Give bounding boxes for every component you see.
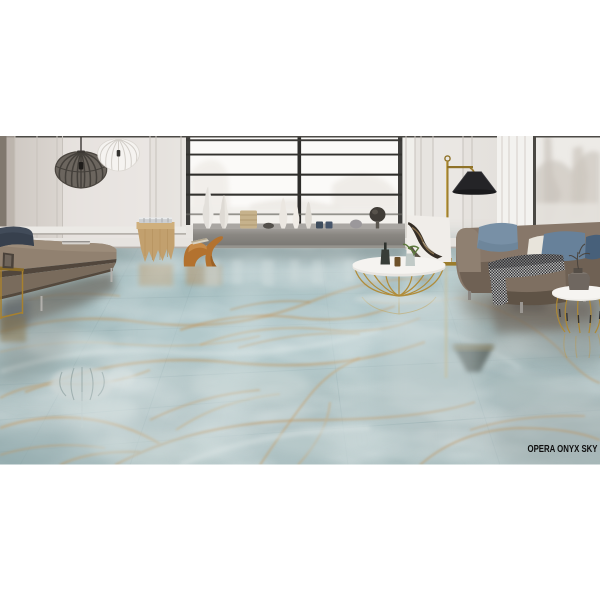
- svg-text:OPERA ONYX SKY: OPERA ONYX SKY: [528, 444, 598, 455]
